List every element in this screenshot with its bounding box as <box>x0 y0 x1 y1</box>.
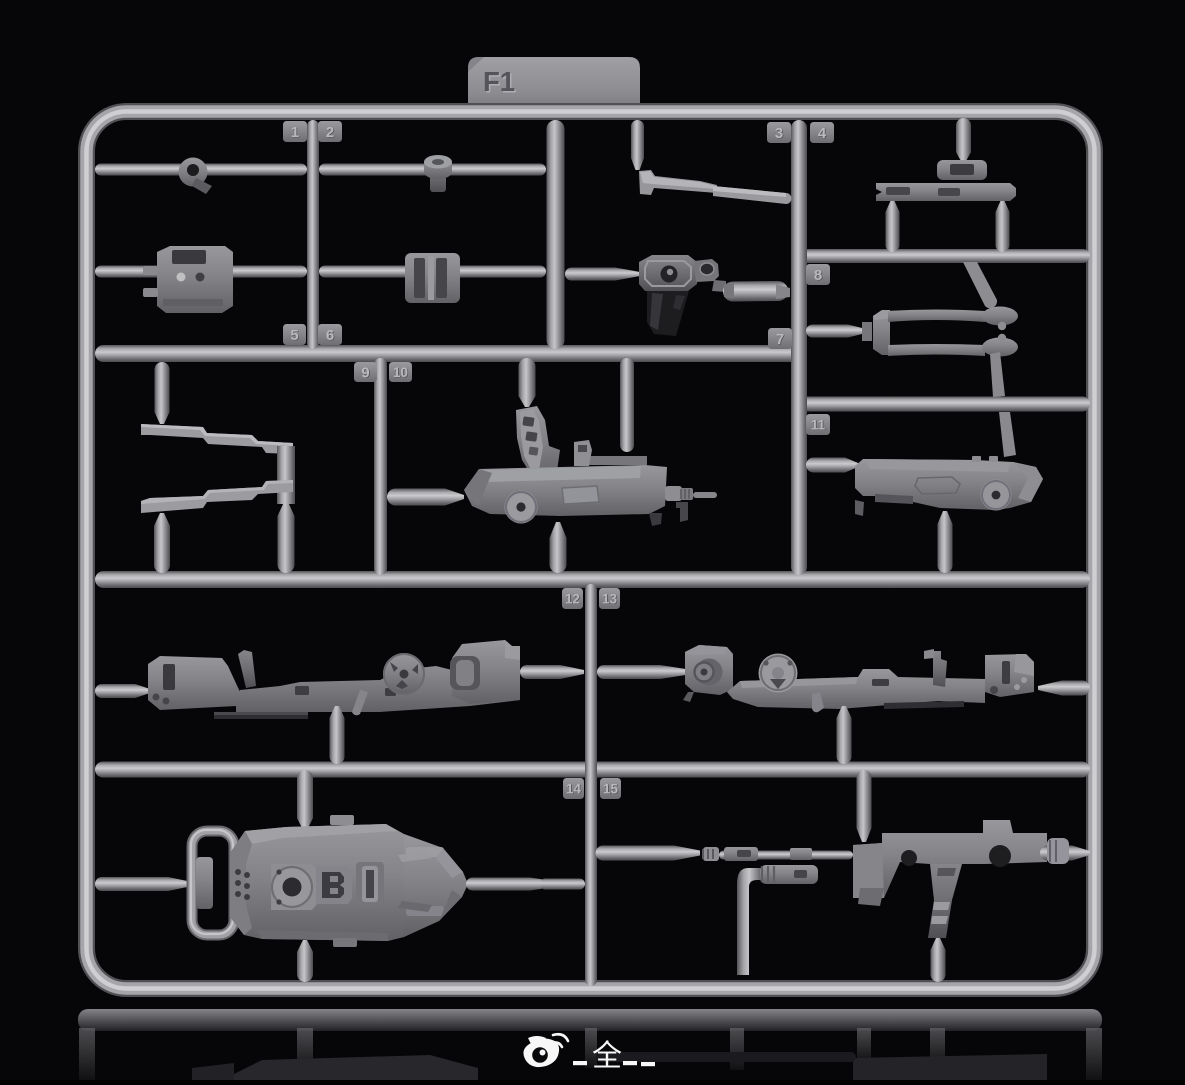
svg-text:2: 2 <box>326 124 334 141</box>
svg-text:13: 13 <box>602 591 618 606</box>
svg-text:3: 3 <box>775 125 783 142</box>
svg-text:7: 7 <box>776 331 784 348</box>
svg-text:9: 9 <box>361 364 369 381</box>
svg-text:F1: F1 <box>483 66 515 97</box>
svg-text:8: 8 <box>814 267 822 284</box>
svg-text:14: 14 <box>566 781 582 796</box>
svg-text:6: 6 <box>326 327 334 344</box>
svg-text:1: 1 <box>291 124 299 141</box>
svg-text:10: 10 <box>393 365 408 380</box>
svg-text:15: 15 <box>603 781 619 796</box>
svg-text:全: 全 <box>592 1040 622 1073</box>
svg-text:5: 5 <box>290 327 298 344</box>
svg-text:12: 12 <box>565 591 580 606</box>
svg-text:4: 4 <box>818 125 827 142</box>
svg-text:11: 11 <box>811 417 826 432</box>
